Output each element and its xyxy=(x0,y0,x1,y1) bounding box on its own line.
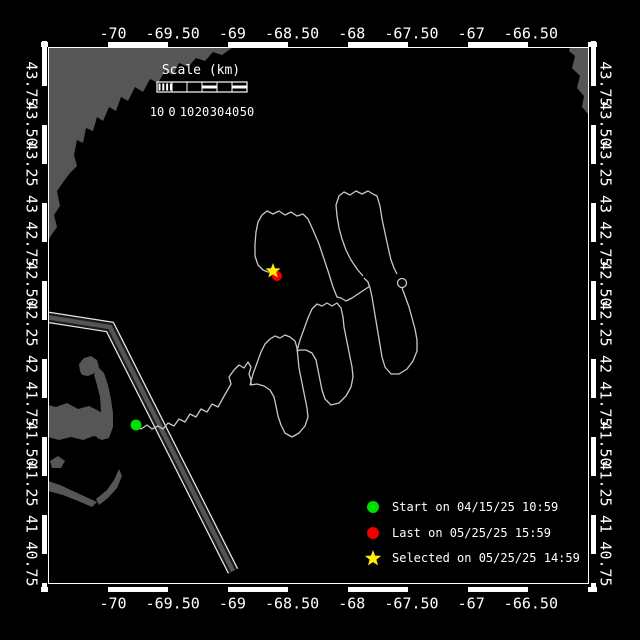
legend-last-label: Last on 05/25/25 15:59 xyxy=(392,527,551,539)
glider-track xyxy=(364,278,417,374)
shipping-lane xyxy=(46,317,233,571)
axis-tick-label: -70 xyxy=(99,27,126,42)
axis-tick-label: 40.75 xyxy=(598,541,613,586)
axis-tick-label: 41.50 xyxy=(598,421,613,466)
scale-bar-tick-label: 10 xyxy=(180,106,194,118)
red-dot-icon xyxy=(367,527,379,539)
map-frame-band xyxy=(528,587,588,592)
scale-bar xyxy=(157,82,247,92)
map-frame-band xyxy=(48,587,108,592)
legend-start-row: Start on 04/15/25 10:59 xyxy=(362,498,558,516)
glider-track xyxy=(255,211,370,301)
scale-bar-tick-label: 10 xyxy=(150,106,164,118)
scale-bar-tick-label: 50 xyxy=(240,106,254,118)
map-frame-band xyxy=(42,398,47,437)
map-canvas[interactable] xyxy=(0,0,640,640)
axis-tick-label: 41.50 xyxy=(24,421,39,466)
green-dot-icon xyxy=(367,501,379,513)
map-frame-band xyxy=(591,398,596,437)
map-frame-band xyxy=(288,42,348,47)
scale-bar-tick-label: 0 xyxy=(168,106,175,118)
map-frame-band xyxy=(528,42,588,47)
start-marker-icon xyxy=(362,498,384,516)
map-frame-band xyxy=(168,42,228,47)
map-frame-band xyxy=(591,476,596,515)
map-frame-band xyxy=(591,554,596,583)
axis-tick-label: -66.50 xyxy=(504,27,558,42)
axis-tick-label: 42.75 xyxy=(24,221,39,266)
axis-tick-label: 41.75 xyxy=(598,381,613,426)
land-polygon xyxy=(96,469,122,505)
map-frame-band xyxy=(591,320,596,359)
map-frame-band xyxy=(591,242,596,281)
axis-tick-label: -68.50 xyxy=(265,597,319,612)
axis-tick-label: 40.75 xyxy=(24,541,39,586)
scale-bar-tick-label: 20 xyxy=(195,106,209,118)
map-frame-band xyxy=(168,587,228,592)
axis-tick-label: -69 xyxy=(219,27,246,42)
map-frame-band xyxy=(42,476,47,515)
axis-tick-label: 42.75 xyxy=(598,221,613,266)
axis-tick-label: -67.50 xyxy=(384,27,438,42)
axis-tick-label: 41 xyxy=(598,515,613,533)
last-marker-icon xyxy=(362,524,384,542)
axis-tick-label: 42 xyxy=(598,355,613,373)
yellow-star-icon xyxy=(363,549,383,567)
selected-marker-icon xyxy=(362,549,384,567)
shipping-lane xyxy=(46,317,233,571)
map-frame-band xyxy=(48,42,108,47)
axis-tick-label: 42.25 xyxy=(598,301,613,346)
axis-tick-label: -67.50 xyxy=(384,597,438,612)
glider-track xyxy=(297,303,353,405)
axis-tick-label: 43.50 xyxy=(598,101,613,146)
axis-tick-label: 41.75 xyxy=(24,381,39,426)
map-content xyxy=(44,47,588,571)
legend-selected-label: Selected on 05/25/25 14:59 xyxy=(392,552,580,564)
map-frame-band xyxy=(408,587,468,592)
start-point-marker[interactable] xyxy=(131,420,142,431)
glider-track xyxy=(336,191,397,276)
axis-tick-label: 43.25 xyxy=(24,141,39,186)
scale-bar-title: Scale (km) xyxy=(162,64,240,77)
axis-tick-label: 43.75 xyxy=(598,61,613,106)
map-frame-band xyxy=(42,86,47,125)
axis-tick-label: 43.50 xyxy=(24,101,39,146)
map-frame-band xyxy=(591,164,596,203)
legend-selected-row: Selected on 05/25/25 14:59 xyxy=(362,549,580,567)
axis-tick-label: -68.50 xyxy=(265,27,319,42)
axis-tick-label: -69.50 xyxy=(146,27,200,42)
axis-tick-label: 43.25 xyxy=(598,141,613,186)
legend-last-row: Last on 05/25/25 15:59 xyxy=(362,524,551,542)
axis-tick-label: 43 xyxy=(24,195,39,213)
map-frame-band xyxy=(288,587,348,592)
land-polygon xyxy=(50,456,65,468)
axis-tick-label: 42 xyxy=(24,355,39,373)
axis-tick-label: 41 xyxy=(24,515,39,533)
land-polygon xyxy=(48,481,97,507)
axis-tick-label: -67 xyxy=(458,27,485,42)
glider-track-map-window: -70-69.50-69-68.50-68-67.50-67-66.50 -70… xyxy=(0,0,640,640)
glider-track-curl xyxy=(398,279,407,288)
legend-start-label: Start on 04/15/25 10:59 xyxy=(392,501,558,513)
map-frame-band xyxy=(42,554,47,583)
axis-tick-label: -69.50 xyxy=(146,597,200,612)
axis-tick-label: -69 xyxy=(219,597,246,612)
scale-bar-tick-label: 30 xyxy=(210,106,224,118)
axis-tick-label: -70 xyxy=(99,597,126,612)
axis-tick-label: 41.25 xyxy=(24,461,39,506)
axis-tick-label: -67 xyxy=(458,597,485,612)
land-polygon xyxy=(569,47,588,114)
map-frame-band xyxy=(591,86,596,125)
axis-tick-label: 43 xyxy=(598,195,613,213)
axis-tick-label: -68 xyxy=(338,597,365,612)
axis-tick-label: 42.50 xyxy=(598,261,613,306)
axis-tick-label: 43.75 xyxy=(24,61,39,106)
map-frame-band xyxy=(42,320,47,359)
axis-tick-label: 42.25 xyxy=(24,301,39,346)
axis-tick-label: -66.50 xyxy=(504,597,558,612)
shipping-lane xyxy=(46,317,233,571)
axis-tick-label: 42.50 xyxy=(24,261,39,306)
map-frame-band xyxy=(42,164,47,203)
map-frame-band xyxy=(408,42,468,47)
map-frame-band xyxy=(42,242,47,281)
axis-tick-label: -68 xyxy=(338,27,365,42)
axis-tick-label: 41.25 xyxy=(598,461,613,506)
scale-bar-tick-label: 40 xyxy=(225,106,239,118)
